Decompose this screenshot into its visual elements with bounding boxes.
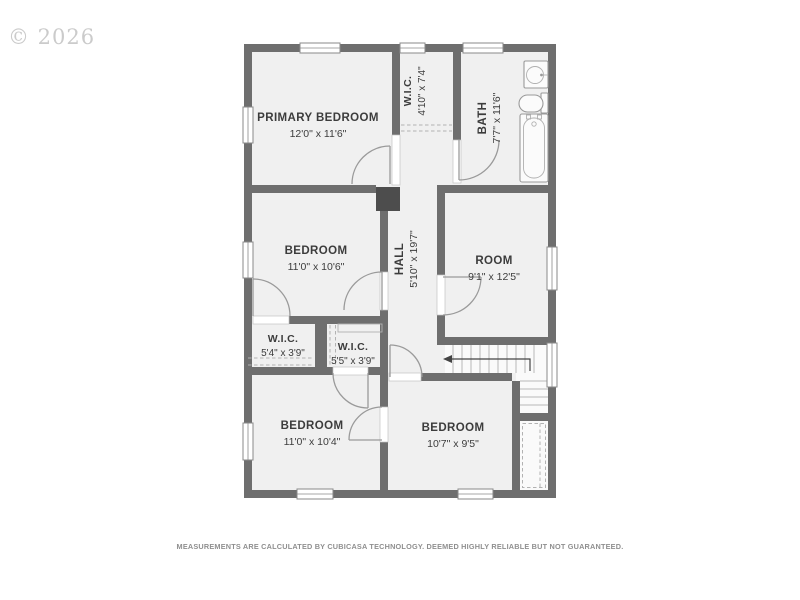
toilet [519, 93, 548, 113]
label-bath: BATH [477, 102, 489, 135]
dims-bedroom-br: 10'7" x 9'5" [427, 438, 479, 450]
dims-bedroom-bl: 11'0" x 10'4" [284, 436, 341, 448]
label-bedroom-bl: BEDROOM [281, 420, 344, 432]
dims-primary-bedroom: 12'0" x 11'6" [290, 128, 347, 140]
bathtub [520, 114, 548, 182]
watermark: © 2026 [8, 25, 95, 49]
dims-bath: 7'7" x 11'6" [491, 92, 503, 143]
label-primary-bedroom: PRIMARY BEDROOM [257, 112, 379, 124]
wall-exterior-bottom [244, 490, 556, 498]
label-wic-right: W.I.C. [338, 341, 368, 353]
label-hall: HALL [394, 243, 406, 275]
label-wic-left: W.I.C. [268, 333, 298, 345]
label-wic-upper: W.I.C. [402, 76, 414, 106]
label-bedroom-br: BEDROOM [422, 422, 485, 434]
dims-wic-left: 5'4" x 3'9" [261, 348, 305, 359]
under-stair-closet [520, 421, 548, 490]
disclaimer-text: MEASUREMENTS ARE CALCULATED BY CUBICASA … [177, 542, 624, 551]
dims-room: 9'1" x 12'5" [468, 271, 520, 283]
dims-bedroom-mid: 11'0" x 10'6" [288, 261, 345, 273]
dims-wic-upper: 4'10" x 7'4" [417, 66, 428, 116]
label-bedroom-mid: BEDROOM [285, 245, 348, 257]
floor-plan: © 2026 [0, 0, 800, 600]
chimney-block [376, 187, 400, 211]
sink [524, 61, 548, 88]
floor-plan-page: © 2026 [0, 0, 800, 600]
label-room: ROOM [475, 255, 512, 267]
dims-hall: 5'10" x 19'7" [408, 230, 420, 288]
dims-wic-right: 5'5" x 3'9" [331, 356, 375, 367]
